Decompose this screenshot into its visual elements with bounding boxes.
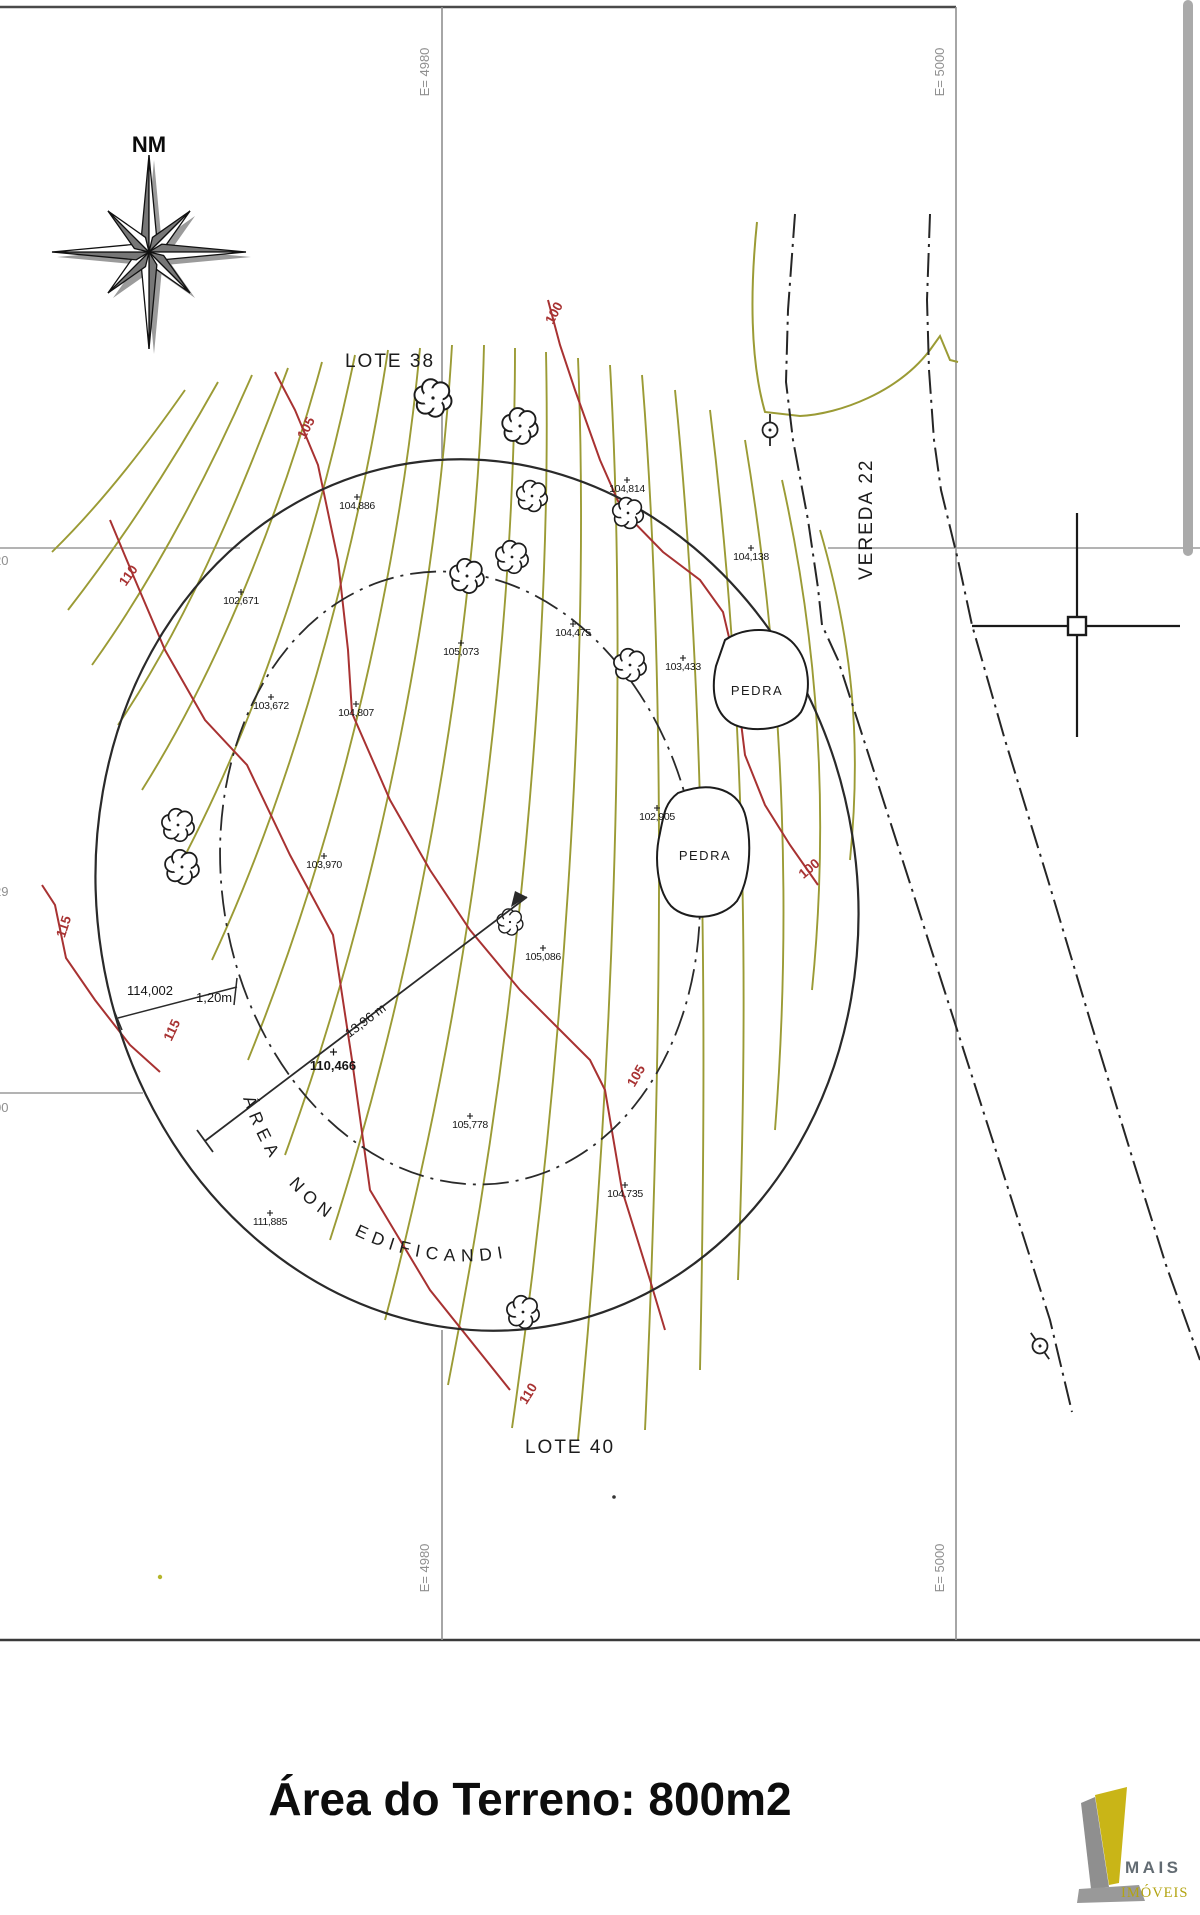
spot-elevation: 104,807 [338, 701, 374, 719]
svg-text:102,671: 102,671 [223, 595, 259, 607]
measure-length-label: 13,96 m [342, 1000, 389, 1040]
svg-text:104,475: 104,475 [555, 627, 591, 639]
logo-text-imoveis: IMÓVEIS [1121, 1884, 1188, 1901]
svg-text:105,086: 105,086 [525, 951, 561, 963]
spot-elevation: 111,885 [253, 1210, 288, 1228]
spot-elevation: 104,475 [555, 621, 591, 639]
contour-line [142, 362, 322, 790]
rock-label: PEDRA [731, 683, 783, 698]
svg-text:104,807: 104,807 [338, 707, 374, 719]
grid-label-e4980-top: E= 4980 [417, 48, 432, 97]
spot-elevation: 103,672 [253, 694, 289, 712]
svg-text:104,886: 104,886 [339, 500, 375, 512]
area-title: Área do Terreno: 800m2 [0, 1772, 1060, 1826]
north-compass-rose [52, 155, 251, 354]
mais-imoveis-logo: MAIS IMÓVEIS [1075, 1785, 1200, 1915]
svg-text:104,735: 104,735 [607, 1188, 643, 1200]
tree-icon [450, 559, 484, 593]
grid-label-e4980-bottom: E= 4980 [417, 1544, 432, 1593]
left-dimension-small-label: 1,20m [196, 990, 232, 1005]
tree-icon [165, 850, 199, 884]
spot-elevation-major: 110,466 [310, 1058, 356, 1073]
lot-40-label: LOTE 40 [525, 1437, 615, 1458]
point-mark [158, 1575, 162, 1579]
contour-line [782, 480, 820, 990]
tree-icon [613, 498, 644, 529]
svg-text:104,814: 104,814 [609, 483, 645, 495]
spot-elevation: 104,886 [339, 494, 375, 512]
spot-elevation: 104,138 [733, 545, 769, 563]
utility-pole-icon [763, 414, 778, 446]
grid-label-cut: 00 [0, 1100, 8, 1115]
svg-text:111,885: 111,885 [253, 1216, 288, 1228]
spot-elevation: 104,735 [607, 1182, 643, 1200]
property-boundary-circle [33, 404, 920, 1386]
compass-star [52, 155, 246, 349]
contour-value-label: 115 [53, 913, 74, 939]
index-contour-line [42, 885, 160, 1072]
tree-icon [496, 541, 528, 574]
contour-line [745, 440, 783, 1130]
svg-text:104,138: 104,138 [733, 551, 769, 563]
svg-text:103,970: 103,970 [306, 859, 342, 871]
grid-label-cut: 29 [0, 884, 8, 899]
plus-tick-icon [330, 1049, 337, 1056]
svg-text:105,073: 105,073 [443, 646, 479, 658]
survey-map-canvas: E= 4980 E= 5000 E= 4980 E= 5000 202900 [0, 0, 1200, 1915]
rock-label: PEDRA [679, 848, 731, 863]
contour-line [212, 350, 388, 960]
tree-icon [414, 379, 451, 416]
spot-elevation: 105,778 [452, 1113, 488, 1131]
tree-icon [502, 408, 537, 444]
contour-line [330, 345, 484, 1240]
index-contour-line [275, 372, 665, 1330]
spot-elevation: 103,970 [306, 853, 342, 871]
tree-icon [517, 481, 548, 512]
tree-icon [162, 809, 194, 842]
tree-symbols [162, 379, 646, 1328]
spot-elevation: 105,073 [443, 640, 479, 658]
rock-outcrop-pedra: PEDRA [714, 630, 808, 729]
point-mark [612, 1495, 616, 1499]
svg-text:105,778: 105,778 [452, 1119, 488, 1131]
contour-line-road-crossing [752, 222, 958, 416]
spot-elevation: 102,671 [223, 589, 259, 607]
grid-label-cut: 20 [0, 553, 8, 568]
spot-elevation: 103,433 [665, 655, 701, 673]
contour-line [578, 365, 617, 1440]
tree-icon [614, 649, 646, 682]
tree-icon [507, 1296, 539, 1329]
rock-outcrop-pedra: PEDRA [657, 787, 749, 916]
lot-38-label: LOTE 38 [345, 351, 435, 372]
svg-text:103,433: 103,433 [665, 661, 701, 673]
svg-text:102,905: 102,905 [639, 811, 675, 823]
left-dimension-label: 114,002 [127, 983, 173, 998]
crosshair-cursor[interactable] [972, 513, 1180, 737]
grid-labels-left-cut: 202900 [0, 553, 8, 1115]
site-plan-viewer: E= 4980 E= 5000 E= 4980 E= 5000 202900 [0, 0, 1200, 1915]
street-name-label: VEREDA 22 [856, 459, 877, 581]
north-label: NM [132, 132, 166, 157]
contour-value-label: 100 [542, 299, 566, 326]
spot-elevation: 105,086 [525, 945, 561, 963]
contour-value-label: 115 [161, 1017, 184, 1044]
contour-line [118, 368, 288, 725]
contour-value-label: 110 [516, 1380, 540, 1406]
contour-value-label: 105 [624, 1062, 648, 1089]
tree-icon [497, 909, 523, 935]
contour-line [385, 348, 515, 1320]
vertical-scrollbar[interactable] [1183, 0, 1193, 556]
logo-text-mais: MAIS [1125, 1858, 1182, 1877]
grid-label-e5000-bottom: E= 5000 [932, 1544, 947, 1593]
grid-label-e5000-top: E= 5000 [932, 48, 947, 97]
svg-text:103,672: 103,672 [253, 700, 289, 712]
utility-pole-icon [1025, 1329, 1056, 1364]
